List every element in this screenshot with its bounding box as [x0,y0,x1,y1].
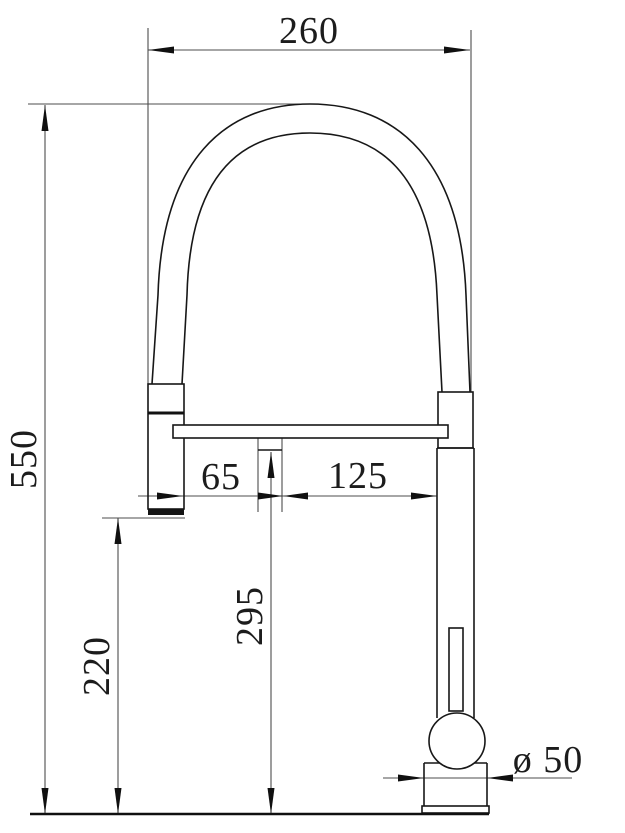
dim-spout-left-offset-label: 65 [201,456,241,498]
dim-spout-to-column-label: 125 [328,455,388,497]
dim-spout-height-label: 295 [229,586,271,646]
faucet-outline [30,104,489,814]
swivel-ball [429,713,485,769]
arrow-up-icon [42,105,49,131]
hose-outer-curve [152,104,470,392]
arrow-up-icon [268,452,275,478]
dim-top-width: 260 [148,10,471,392]
dim-connector-height-label: 220 [76,636,118,696]
dim-connector-height: 220 [76,518,185,814]
dim-total-height-label: 550 [3,429,45,489]
right-connector [438,392,473,448]
dim-spout-height: 295 [229,452,275,814]
arrow-right-icon [411,493,437,500]
arrow-up-icon [115,518,122,544]
arrow-left-icon [487,775,513,782]
hose-inner-curve [182,133,442,392]
dim-spout-offsets: 65 125 [138,438,437,512]
faucet-dimension-drawing: 550 260 220 295 65 125 [0,0,625,833]
arrow-left-icon [283,493,308,500]
arrow-left-icon [148,47,174,54]
dim-total-height: 550 [3,104,310,814]
arrow-right-icon [398,775,424,782]
arrow-down-icon [268,788,275,814]
base-flange [422,806,489,813]
arrow-down-icon [42,788,49,814]
left-connector-end-cap [148,509,184,515]
arrow-right-icon [444,47,470,54]
technical-drawing-sheet: 550 260 220 295 65 125 [0,0,625,833]
spout-bar [173,425,448,438]
dim-base-diameter-label: ø 50 [513,739,584,781]
dim-top-width-label: 260 [279,10,339,52]
arrow-right-icon [157,493,183,500]
arrow-down-icon [115,788,122,814]
left-connector [148,384,184,509]
handle-slot [449,628,463,711]
